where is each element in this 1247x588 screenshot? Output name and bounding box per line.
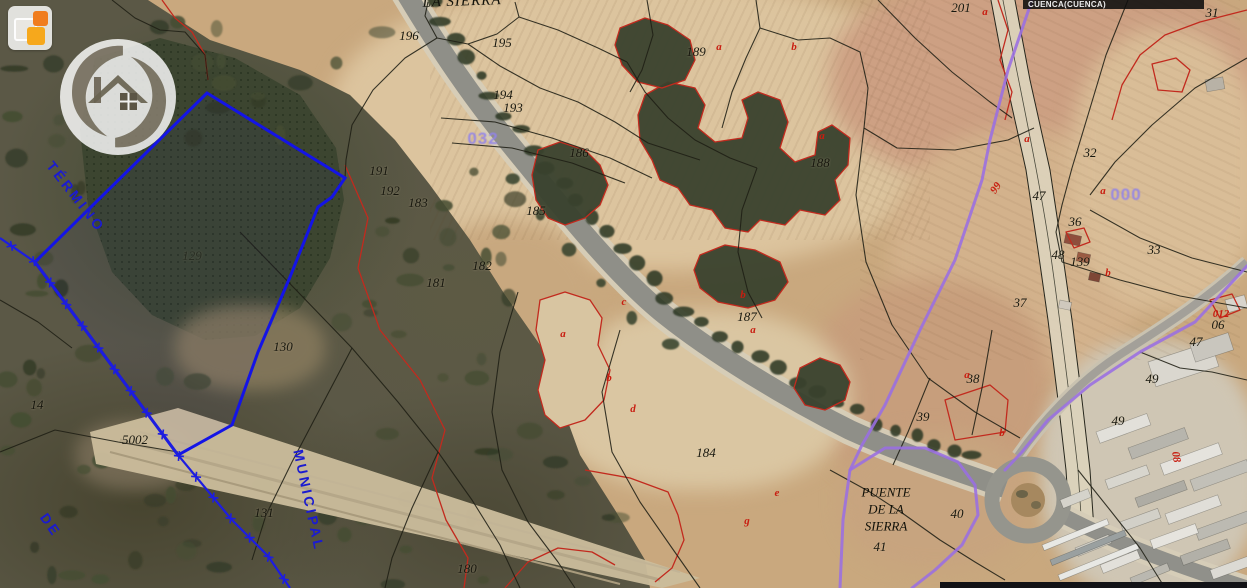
municipality-name: CUENCA(CUENCA) (1028, 0, 1106, 9)
tile-orange (33, 11, 48, 26)
tiles-logo-icon (8, 6, 52, 50)
municipality-header-bar: CUENCA(CUENCA) (1023, 0, 1204, 9)
bottom-dark-strip (940, 582, 1247, 588)
tile-amber (27, 27, 45, 45)
map-overlay (0, 0, 1247, 588)
house-swirl-watermark-logo (58, 37, 178, 157)
cadastral-map-viewport[interactable]: LA SIERRA TÉRMINO MUNICIPAL DE PUENTE DE… (0, 0, 1247, 588)
